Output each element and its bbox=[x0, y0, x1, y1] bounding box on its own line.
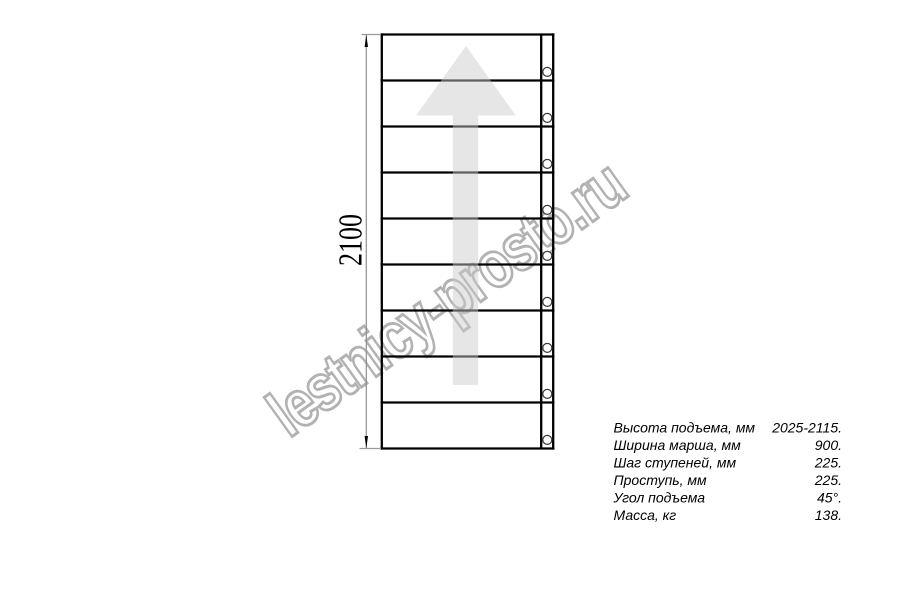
svg-text:900.: 900. bbox=[815, 437, 842, 453]
svg-text:Проступь, мм: Проступь, мм bbox=[614, 472, 708, 488]
svg-text:Угол подъема: Угол подъема bbox=[613, 489, 706, 505]
svg-text:225.: 225. bbox=[814, 472, 842, 488]
svg-text:45°.: 45°. bbox=[817, 489, 842, 505]
svg-text:2025-2115.: 2025-2115. bbox=[771, 419, 842, 435]
svg-text:138.: 138. bbox=[815, 507, 842, 523]
svg-text:225.: 225. bbox=[814, 454, 842, 470]
svg-text:Масса, кг: Масса, кг bbox=[614, 507, 677, 523]
svg-text:Шаг ступеней, мм: Шаг ступеней, мм bbox=[614, 454, 737, 470]
svg-text:Высота подъема, мм: Высота подъема, мм bbox=[614, 419, 756, 435]
svg-text:Ширина марша, мм: Ширина марша, мм bbox=[614, 437, 742, 453]
svg-text:2100: 2100 bbox=[331, 214, 369, 266]
